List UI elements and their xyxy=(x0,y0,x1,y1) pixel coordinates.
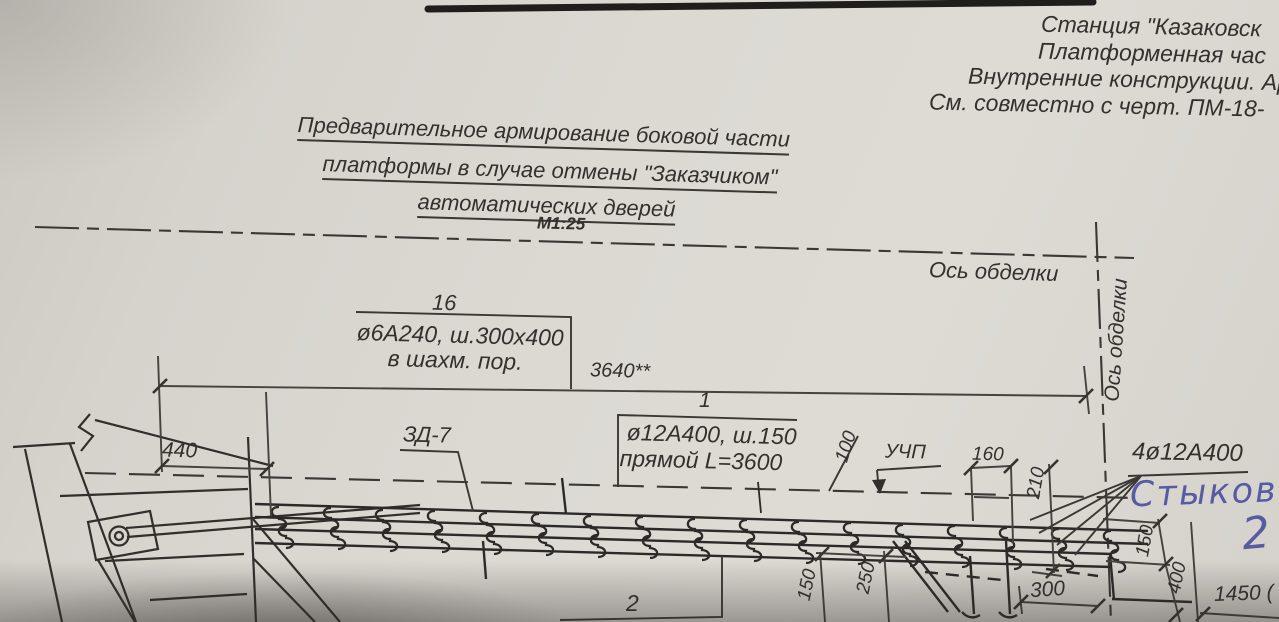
dimension-160: 160 xyxy=(972,445,1004,466)
item2-position-number: 2 xyxy=(626,591,639,616)
dimension-440: 440 xyxy=(162,440,198,464)
dimension-300: 300 xyxy=(1029,578,1066,603)
lining-axis-label-horizontal: Ось обделки xyxy=(929,258,1059,286)
header-part-line: Платформенная час xyxy=(1038,39,1266,69)
floor-level-line xyxy=(85,473,1135,498)
dimension-overall-3640: 3640** xyxy=(590,360,651,383)
floor-level-mark: УЧП xyxy=(885,441,926,464)
photographed-drawing-sheet: Станция "Казаковск Платформенная час Вну… xyxy=(0,0,1279,622)
handwritten-number: 2 xyxy=(1240,509,1274,559)
left-wall-structure xyxy=(13,414,420,622)
sheet-top-edge xyxy=(428,2,1093,9)
header-station-line: Станция "Казаковск xyxy=(1041,12,1262,41)
corner-bars-callout: 4ø12А400 xyxy=(1132,439,1243,467)
embed-mark-zd7: ЗД-7 xyxy=(403,422,451,447)
bar-note: прямой L=3600 xyxy=(619,446,782,475)
dimension-1450: 1450 ( xyxy=(1214,582,1274,607)
mesh-position-number: 16 xyxy=(432,291,457,315)
drawing-scale: М1:25 xyxy=(537,214,586,234)
mesh-note: в шахм. пор. xyxy=(387,346,523,375)
bar-position-number: 1 xyxy=(699,390,711,413)
